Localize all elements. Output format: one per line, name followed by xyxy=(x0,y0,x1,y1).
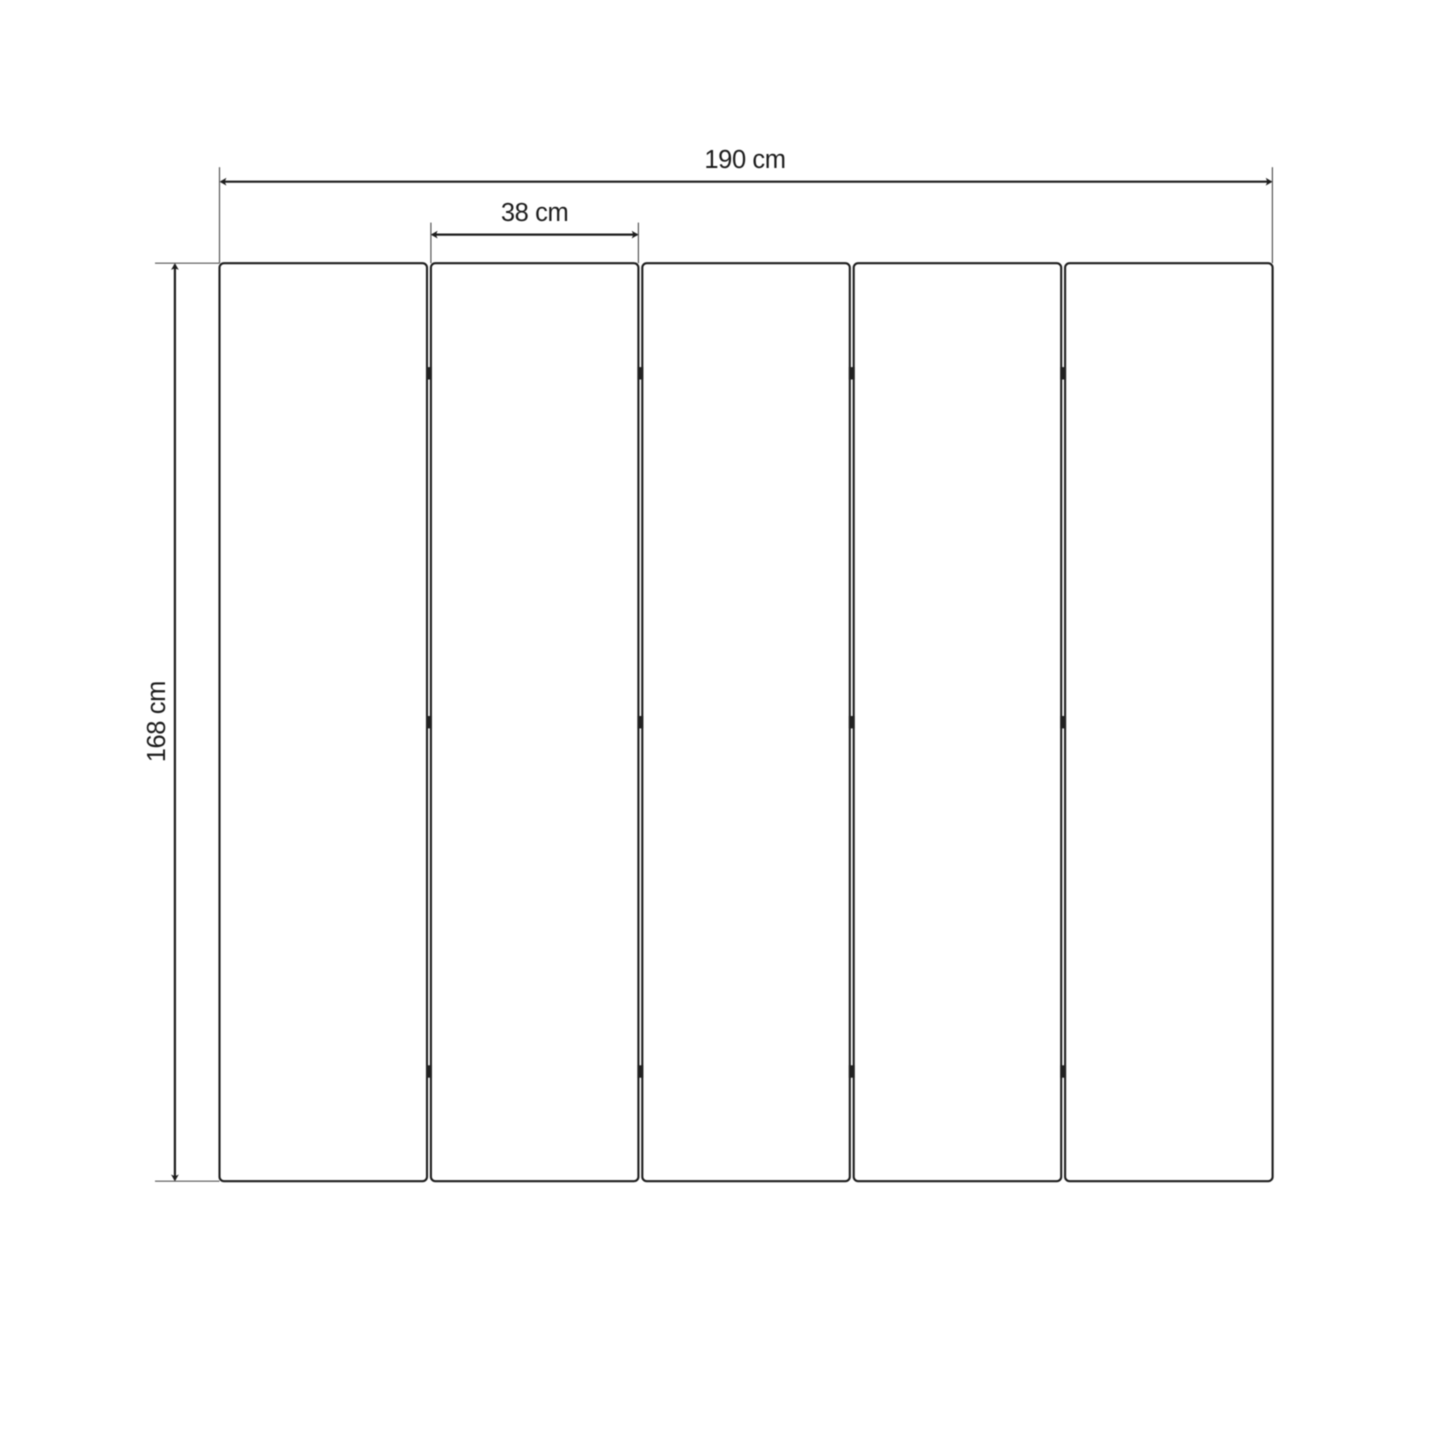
svg-text:190 cm: 190 cm xyxy=(704,146,785,174)
svg-text:38 cm: 38 cm xyxy=(501,199,568,227)
svg-text:168 cm: 168 cm xyxy=(143,681,171,762)
